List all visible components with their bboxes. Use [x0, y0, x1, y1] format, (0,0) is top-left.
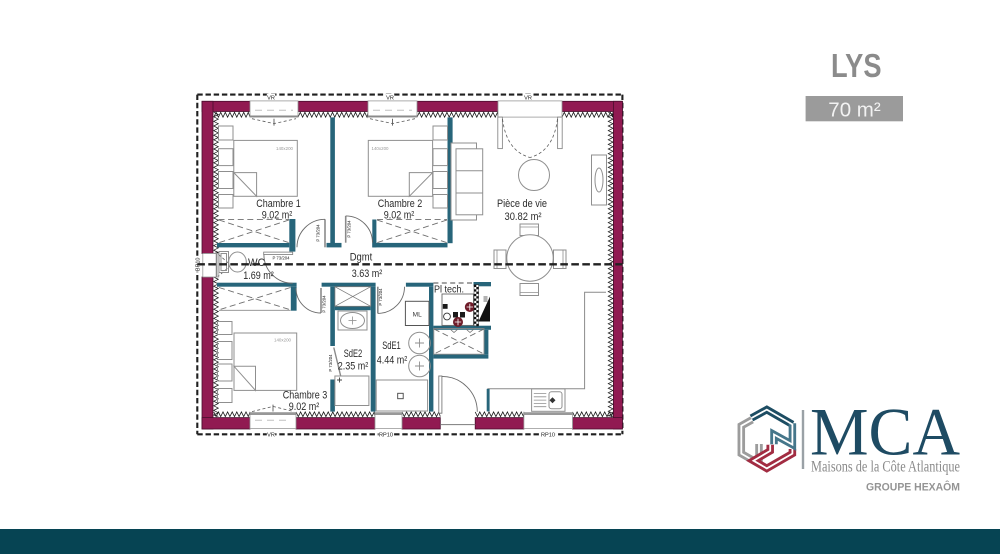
- svg-text:2.35 m²: 2.35 m²: [338, 361, 369, 373]
- svg-text:4.44 m²: 4.44 m²: [377, 355, 408, 367]
- svg-text:Chambre 3: Chambre 3: [283, 390, 328, 402]
- svg-text:Chambre 2: Chambre 2: [378, 198, 423, 210]
- svg-text:P 73/204: P 73/204: [328, 354, 333, 372]
- svg-text:RP10: RP10: [379, 433, 393, 439]
- svg-text:Pl tech.: Pl tech.: [434, 285, 464, 296]
- svg-text:3.63 m²: 3.63 m²: [352, 268, 383, 280]
- svg-text:140x200: 140x200: [274, 338, 292, 343]
- svg-text:Dgmt: Dgmt: [350, 252, 373, 264]
- svg-text:VR: VR: [267, 433, 275, 439]
- svg-text:SdE2: SdE2: [344, 348, 363, 360]
- svg-text:30.82 m²: 30.82 m²: [505, 211, 542, 223]
- svg-text:P 73/204: P 73/204: [322, 295, 327, 313]
- svg-text:GROUPE HEXAÔM: GROUPE HEXAÔM: [866, 481, 960, 494]
- svg-text:9.02 m²: 9.02 m²: [384, 210, 415, 222]
- svg-text:Pièce de vie: Pièce de vie: [497, 198, 547, 210]
- svg-text:Chambre 1: Chambre 1: [256, 198, 301, 210]
- svg-text:P 73/204: P 73/204: [272, 256, 290, 261]
- svg-text:RP10: RP10: [541, 433, 555, 439]
- svg-text:P 73/204: P 73/204: [316, 224, 321, 242]
- svg-text:ML: ML: [413, 312, 422, 319]
- svg-text:9.02 m²: 9.02 m²: [262, 210, 293, 222]
- svg-text:140x200: 140x200: [372, 146, 390, 151]
- svg-text:140x200: 140x200: [276, 146, 294, 151]
- svg-text:P 73/204: P 73/204: [347, 220, 352, 238]
- svg-text:WC: WC: [248, 257, 265, 269]
- svg-text:LYS: LYS: [831, 47, 882, 84]
- svg-text:SdE1: SdE1: [382, 340, 401, 352]
- svg-text:70 m²: 70 m²: [828, 99, 881, 122]
- svg-text:P 73/204: P 73/204: [378, 288, 383, 306]
- svg-text:1.69 m²: 1.69 m²: [243, 270, 274, 282]
- svg-text:9.02 m²: 9.02 m²: [289, 401, 320, 413]
- svg-text:Maisons de la Côte Atlantique: Maisons de la Côte Atlantique: [811, 459, 960, 476]
